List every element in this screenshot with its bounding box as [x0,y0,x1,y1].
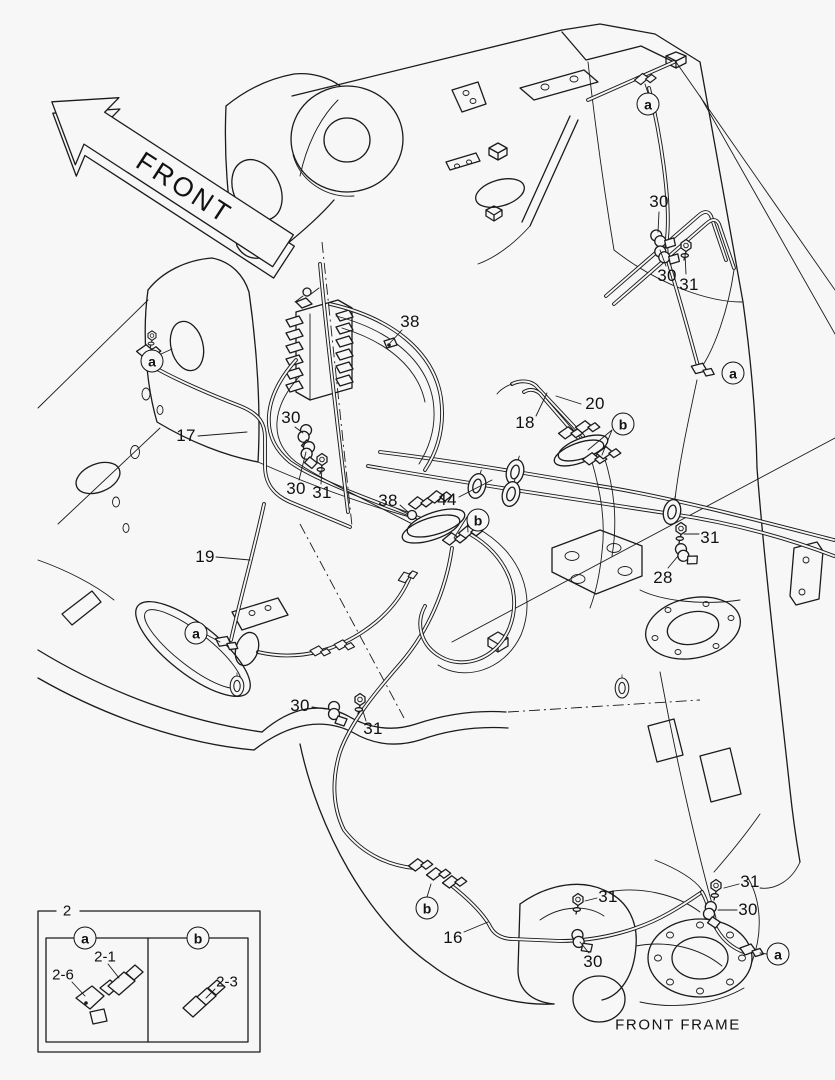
legend-part-2-3: 2-3 [216,974,238,991]
callout-31-top: 31 [679,275,699,295]
callout-18: 18 [515,413,535,433]
legend-part-2-6: 2-6 [52,967,74,984]
callout-30-midleft-2: 30 [286,479,306,499]
callout-16: 16 [443,928,463,948]
legend-part-2-1: 2-1 [94,949,116,966]
callout-30-br: 30 [738,900,758,920]
callout-30-botmid: 30 [290,696,310,716]
legend-marker-b: b [187,927,210,950]
circle-marker-a-mid-left: a [185,622,208,645]
circle-marker-a-left: a [141,350,164,373]
legend-group-label: 2 [63,903,71,920]
callout-20: 20 [585,394,605,414]
callout-38-upper: 38 [400,312,420,332]
callout-30-top2: 30 [657,266,677,286]
callout-38-lower: 38 [378,491,398,511]
callout-31-right: 31 [700,528,720,548]
callout-31-bot: 31 [598,887,618,907]
hydraulic-manifold [286,288,353,400]
hydraulic-tubes [152,62,834,953]
callout-30-top: 30 [649,192,669,212]
clamps-bolts-grommets [230,224,725,955]
callout-19: 19 [195,547,215,567]
parts-diagram-page: FRONT FRONT FRAME 2 2-1 2-6 2-3 a b 3030… [0,0,835,1080]
callout-44: 44 [437,490,457,510]
caption-front-frame: FRONT FRAME [615,1017,741,1034]
circle-marker-a-top-right: a [637,93,660,116]
circle-marker-b-mid-right: b [612,413,635,436]
circle-marker-a-right: a [722,362,745,385]
callout-17: 17 [176,426,196,446]
callout-31-br: 31 [740,872,760,892]
circle-marker-a-bottom-right: a [767,943,790,966]
legend-marker-a: a [74,927,97,950]
callout-30-midleft-1: 30 [281,408,301,428]
callout-31-botmid: 31 [363,719,383,739]
callout-30-bot: 30 [583,952,603,972]
callout-28: 28 [653,568,673,588]
circle-marker-b-mid: b [467,509,490,532]
callout-31-midleft: 31 [312,483,332,503]
circle-marker-b-bottom: b [416,897,439,920]
front-arrow: FRONT [25,68,310,296]
